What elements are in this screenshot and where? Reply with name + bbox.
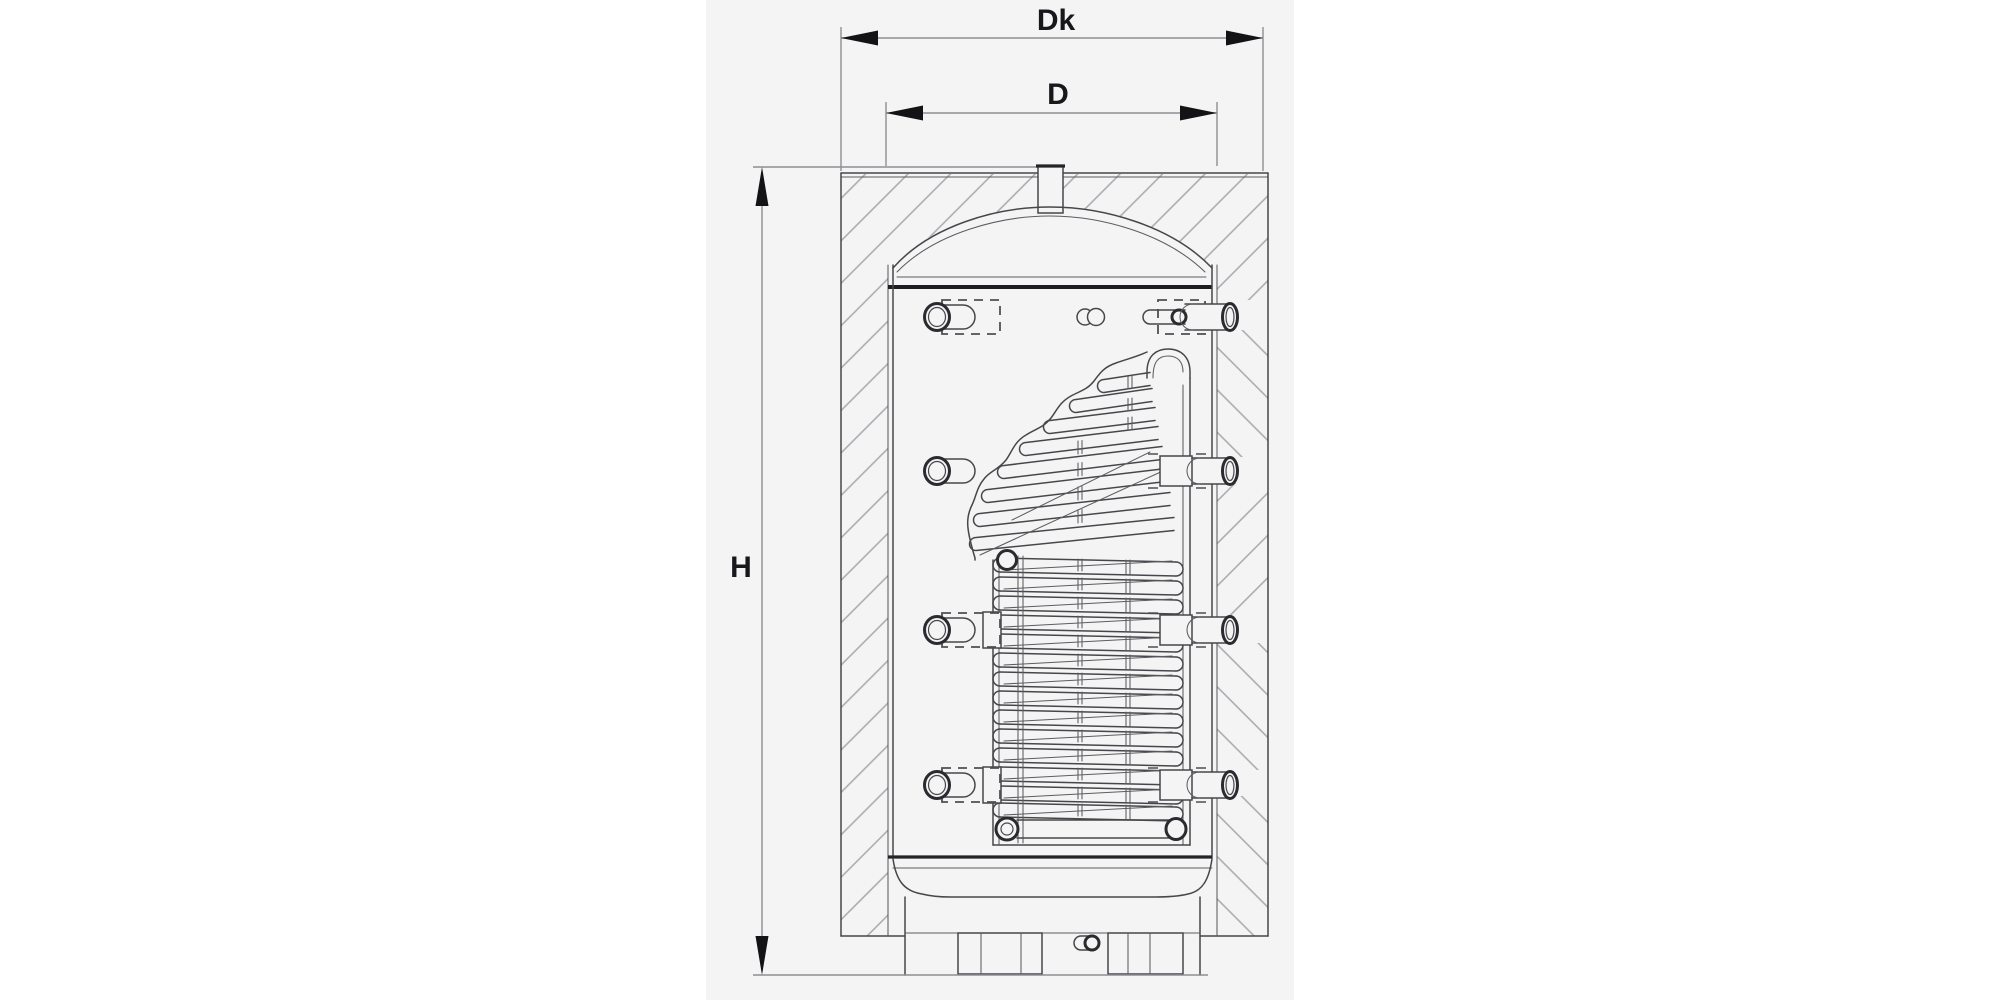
label-outer-diameter: Dk: [1037, 4, 1076, 37]
top-port: [1036, 166, 1065, 213]
foot-right: [1108, 933, 1183, 974]
drain-port: [1074, 936, 1099, 950]
right-port-2: [1148, 454, 1238, 488]
left-port-3: [925, 612, 1002, 648]
dimension-h: H: [730, 167, 768, 975]
coil-rod-top-fitting: [998, 551, 1017, 570]
technical-drawing-page: Dk D H: [0, 0, 2000, 1000]
coil-rows: [993, 558, 1183, 821]
left-port-1: [925, 300, 1001, 334]
coil-staircase-tubes: [970, 373, 1174, 556]
label-height: H: [730, 551, 752, 584]
tank-cross-section-drawing: Dk D H: [0, 0, 2000, 1000]
tank-bottom-and-feet: [888, 857, 1212, 975]
foot-left: [958, 933, 1042, 974]
left-port-2: [925, 458, 976, 485]
left-ports: [925, 300, 1002, 803]
right-port-4: [1148, 768, 1238, 802]
dimension-d: D: [886, 78, 1217, 166]
left-port-4: [925, 767, 1002, 803]
temperature-sensor-well: [1077, 309, 1105, 326]
label-inner-diameter: D: [1047, 78, 1069, 111]
right-port-3: [1148, 613, 1238, 647]
right-port-1: [1143, 300, 1238, 334]
